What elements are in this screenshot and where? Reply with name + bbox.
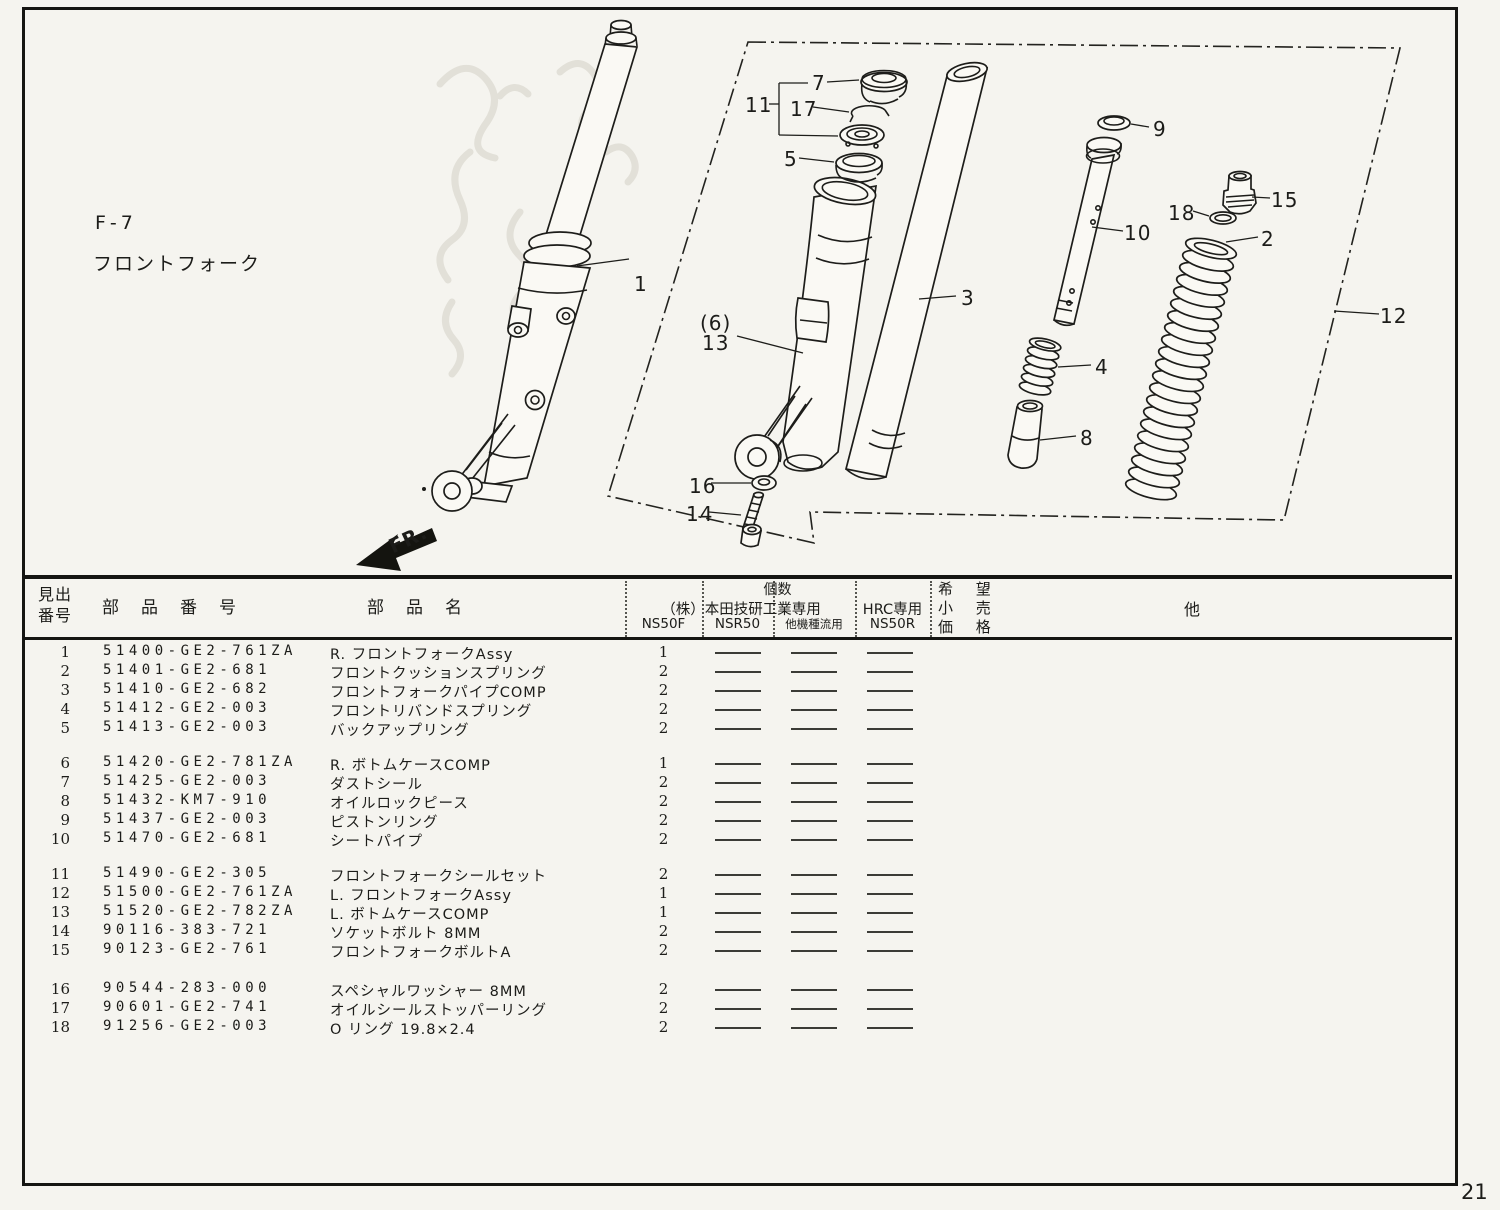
part-callout-1: 1	[634, 272, 648, 296]
table-row: 951437-GE2-003ピストンリング2	[22, 811, 1452, 830]
cell-part-number: 51420-GE2-781ZA	[103, 754, 297, 770]
cell-qty-ns50f: 2	[625, 865, 702, 883]
part-callout-10: 10	[1124, 221, 1151, 245]
cell-qty-other-models-dash	[791, 950, 837, 952]
cell-part-number: 51412-GE2-003	[103, 700, 271, 716]
cell-qty-other-models-dash	[791, 912, 837, 914]
cell-qty-nsr50-dash	[715, 989, 761, 991]
header-part-number: 部品番号	[102, 593, 258, 618]
cell-qty-ns50r-dash	[867, 671, 913, 673]
table-row: 251401-GE2-681フロントクッションスプリング2	[22, 662, 1452, 681]
part-callout-16: 16	[689, 474, 716, 498]
cell-qty-other-models-dash	[791, 709, 837, 711]
cell-qty-nsr50-dash	[715, 874, 761, 876]
cell-index-number: 5	[30, 719, 70, 737]
part-8-oil-lock-piece	[1008, 401, 1043, 469]
cell-part-number: 51490-GE2-305	[103, 865, 271, 881]
part-callout-17: 17	[790, 97, 817, 121]
table-row: 1251500-GE2-761ZAL. フロントフォークAssy1	[22, 884, 1452, 903]
cell-qty-ns50f: 1	[625, 754, 702, 772]
part-callout-12: 12	[1380, 304, 1407, 328]
cell-index-number: 7	[30, 773, 70, 791]
cell-index-number: 12	[30, 884, 70, 902]
cell-qty-ns50r-dash	[867, 801, 913, 803]
cell-qty-ns50r-dash	[867, 709, 913, 711]
cell-qty-nsr50-dash	[715, 763, 761, 765]
part-11-oil-seal	[840, 125, 884, 148]
part-callout-8: 8	[1080, 426, 1094, 450]
cell-qty-ns50r-dash	[867, 893, 913, 895]
cell-qty-ns50f: 2	[625, 681, 702, 699]
cell-qty-other-models-dash	[791, 690, 837, 692]
cell-part-name: フロントリバンドスプリング	[330, 700, 532, 721]
cell-index-number: 17	[30, 999, 70, 1017]
table-row: 351410-GE2-682フロントフォークパイプCOMP2	[22, 681, 1452, 700]
part-callout-9: 9	[1153, 117, 1167, 141]
page-number: 21	[1461, 1180, 1488, 1204]
cell-index-number: 11	[30, 865, 70, 883]
cell-qty-other-models-dash	[791, 763, 837, 765]
cell-qty-ns50f: 2	[625, 941, 702, 959]
cell-qty-ns50f: 2	[625, 811, 702, 829]
cell-qty-nsr50-dash	[715, 782, 761, 784]
table-row: 1490116-383-721ソケットボルト 8MM2	[22, 922, 1452, 941]
cell-qty-nsr50-dash	[715, 950, 761, 952]
part-17-stopper-ring	[850, 106, 889, 122]
part-4-rebound-spring	[1018, 336, 1062, 398]
part-callout-4: 4	[1095, 355, 1109, 379]
table-row: 1790601-GE2-741オイルシールストッパーリング2	[22, 999, 1452, 1018]
cell-index-number: 10	[30, 830, 70, 848]
header-ns50r: NS50R	[855, 616, 930, 632]
panel-outline	[608, 42, 1400, 543]
cell-qty-ns50r-dash	[867, 931, 913, 933]
part-18-o-ring	[1210, 212, 1236, 224]
part-callout-11: 11	[745, 93, 772, 117]
cell-qty-nsr50-dash	[715, 1008, 761, 1010]
cell-qty-nsr50-dash	[715, 652, 761, 654]
table-row: 1051470-GE2-681シートパイプ2	[22, 830, 1452, 849]
part-callout-3: 3	[961, 286, 975, 310]
cell-part-number: 51425-GE2-003	[103, 773, 271, 789]
cell-part-number: 51437-GE2-003	[103, 811, 271, 827]
cell-qty-other-models-dash	[791, 671, 837, 673]
cell-qty-ns50r-dash	[867, 874, 913, 876]
cell-part-name: オイルシールストッパーリング	[330, 999, 547, 1020]
cell-qty-nsr50-dash	[715, 728, 761, 730]
header-other-models: 他機種流用	[773, 616, 855, 632]
cell-part-name: ピストンリング	[330, 811, 439, 832]
cell-part-name: L. フロントフォークAssy	[330, 884, 512, 905]
cell-qty-other-models-dash	[791, 652, 837, 654]
part-callout-14: 14	[686, 502, 713, 526]
cell-part-name: R. フロントフォークAssy	[330, 643, 513, 664]
parts-table: 見出 番号 部品番号 部品名 個数 （株）本田技研工業専用 HRC専用 NS50…	[22, 575, 1452, 1184]
cell-index-number: 4	[30, 700, 70, 718]
cell-qty-other-models-dash	[791, 782, 837, 784]
cell-qty-other-models-dash	[791, 931, 837, 933]
part-callout-13: 13	[702, 331, 729, 355]
cell-part-name: ダストシール	[330, 773, 423, 794]
cell-qty-ns50r-dash	[867, 782, 913, 784]
cell-part-name: O リング 19.8×2.4	[330, 1018, 476, 1039]
table-row: 1690544-283-000スペシャルワッシャー 8MM2	[22, 980, 1452, 999]
header-quantity-group: 個数	[625, 579, 930, 599]
part-16-special-washer	[752, 476, 776, 490]
cell-index-number: 8	[30, 792, 70, 810]
part-callout-18: 18	[1168, 201, 1195, 225]
header-ns50f: NS50F	[625, 616, 702, 632]
cell-part-number: 51413-GE2-003	[103, 719, 271, 735]
cell-qty-ns50f: 1	[625, 884, 702, 902]
cell-qty-nsr50-dash	[715, 1027, 761, 1029]
table-header-divider	[22, 637, 1452, 640]
cell-part-name: L. ボトムケースCOMP	[330, 903, 489, 924]
cell-qty-ns50f: 2	[625, 830, 702, 848]
cell-qty-nsr50-dash	[715, 931, 761, 933]
cell-index-number: 13	[30, 903, 70, 921]
cell-qty-nsr50-dash	[715, 839, 761, 841]
cell-qty-other-models-dash	[791, 989, 837, 991]
cell-index-number: 1	[30, 643, 70, 661]
cell-part-number: 91256-GE2-003	[103, 1018, 271, 1034]
cell-qty-ns50f: 2	[625, 792, 702, 810]
cell-qty-nsr50-dash	[715, 709, 761, 711]
cell-index-number: 16	[30, 980, 70, 998]
cell-qty-ns50r-dash	[867, 839, 913, 841]
cell-qty-ns50r-dash	[867, 763, 913, 765]
cell-qty-other-models-dash	[791, 728, 837, 730]
header-retail-price: 希 望 小 売 価 格	[938, 580, 1000, 637]
header-price-line1: 希 望	[938, 580, 1000, 599]
cell-part-name: スペシャルワッシャー 8MM	[330, 980, 527, 1001]
cell-part-name: シートパイプ	[330, 830, 423, 851]
table-row: 551413-GE2-003バックアップリング2	[22, 719, 1452, 738]
header-price-line2: 小 売	[938, 599, 1000, 618]
cell-qty-ns50r-dash	[867, 652, 913, 654]
cell-part-number: 51410-GE2-682	[103, 681, 271, 697]
cell-qty-other-models-dash	[791, 839, 837, 841]
header-other: 他	[1022, 596, 1362, 620]
cell-qty-ns50f: 2	[625, 700, 702, 718]
cell-qty-ns50f: 2	[625, 1018, 702, 1036]
cell-part-number: 51520-GE2-782ZA	[103, 903, 297, 919]
cell-qty-nsr50-dash	[715, 801, 761, 803]
cell-qty-other-models-dash	[791, 874, 837, 876]
part-14-socket-bolt	[741, 492, 763, 546]
cell-index-number: 9	[30, 811, 70, 829]
table-row: 1351520-GE2-782ZAL. ボトムケースCOMP1	[22, 903, 1452, 922]
cell-part-name: フロントフォークパイプCOMP	[330, 681, 547, 702]
cell-part-name: フロントクッションスプリング	[330, 662, 547, 683]
cell-part-number: 51401-GE2-681	[103, 662, 271, 678]
cell-qty-ns50r-dash	[867, 820, 913, 822]
cell-index-number: 18	[30, 1018, 70, 1036]
cell-qty-ns50r-dash	[867, 1027, 913, 1029]
table-row: 751425-GE2-003ダストシール2	[22, 773, 1452, 792]
cell-qty-nsr50-dash	[715, 690, 761, 692]
cell-part-number: 90544-283-000	[103, 980, 271, 996]
cell-qty-ns50f: 1	[625, 643, 702, 661]
part-callout-5: 5	[784, 147, 798, 171]
header-price-line3: 価 格	[938, 618, 1000, 637]
cell-qty-ns50f: 2	[625, 773, 702, 791]
cell-qty-other-models-dash	[791, 1008, 837, 1010]
cell-qty-ns50r-dash	[867, 950, 913, 952]
cell-index-number: 15	[30, 941, 70, 959]
part-2-cushion-spring	[1124, 234, 1239, 504]
cell-qty-ns50r-dash	[867, 989, 913, 991]
cell-qty-ns50f: 2	[625, 999, 702, 1017]
cell-qty-other-models-dash	[791, 893, 837, 895]
part-callout-2: 2	[1261, 227, 1275, 251]
table-row: 151400-GE2-761ZAR. フロントフォークAssy1	[22, 643, 1452, 662]
cell-index-number: 14	[30, 922, 70, 940]
cell-qty-nsr50-dash	[715, 820, 761, 822]
part-10-seat-pipe	[1054, 138, 1121, 326]
cell-index-number: 2	[30, 662, 70, 680]
cell-qty-other-models-dash	[791, 1027, 837, 1029]
part-callout-15: 15	[1271, 188, 1298, 212]
cell-part-name: オイルロックピース	[330, 792, 469, 813]
table-row: 1151490-GE2-305フロントフォークシールセット2	[22, 865, 1452, 884]
header-index-line2: 番号	[38, 606, 72, 626]
cell-qty-ns50f: 2	[625, 719, 702, 737]
cell-part-number: 90123-GE2-761	[103, 941, 271, 957]
callout-leader-lines	[577, 80, 1379, 515]
cell-qty-ns50r-dash	[867, 690, 913, 692]
cell-qty-ns50r-dash	[867, 912, 913, 914]
table-row: 851432-KM7-910オイルロックピース2	[22, 792, 1452, 811]
cell-qty-ns50f: 1	[625, 903, 702, 921]
cell-qty-ns50r-dash	[867, 728, 913, 730]
cell-qty-other-models-dash	[791, 801, 837, 803]
cell-part-number: 51470-GE2-681	[103, 830, 271, 846]
cell-qty-ns50f: 2	[625, 662, 702, 680]
column-divider	[930, 581, 932, 637]
part-9-piston-ring	[1098, 116, 1130, 130]
cell-part-name: バックアップリング	[330, 719, 470, 740]
table-row: 651420-GE2-781ZAR. ボトムケースCOMP1	[22, 754, 1452, 773]
cell-qty-nsr50-dash	[715, 893, 761, 895]
cell-qty-ns50f: 2	[625, 922, 702, 940]
part-3-fork-pipe	[846, 59, 989, 479]
cell-qty-ns50f: 2	[625, 980, 702, 998]
cell-part-number: 90601-GE2-741	[103, 999, 271, 1015]
cell-qty-nsr50-dash	[715, 912, 761, 914]
part-callout-7: 7	[812, 71, 826, 95]
part-5-backup-ring	[836, 154, 882, 183]
cell-part-name: R. ボトムケースCOMP	[330, 754, 491, 775]
cell-part-number: 51400-GE2-761ZA	[103, 643, 297, 659]
cell-qty-ns50r-dash	[867, 1008, 913, 1010]
cell-part-name: フロントフォークシールセット	[330, 865, 547, 886]
table-row: 1590123-GE2-761フロントフォークボルトA2	[22, 941, 1452, 960]
cell-part-number: 51500-GE2-761ZA	[103, 884, 297, 900]
part-15-fork-bolt	[1223, 172, 1256, 214]
cell-index-number: 6	[30, 754, 70, 772]
header-part-name: 部品名	[367, 593, 484, 618]
cell-index-number: 3	[30, 681, 70, 699]
table-row: 451412-GE2-003フロントリバンドスプリング2	[22, 700, 1452, 719]
header-index-line1: 見出	[38, 585, 72, 605]
table-row: 1891256-GE2-003O リング 19.8×2.42	[22, 1018, 1452, 1037]
cell-qty-nsr50-dash	[715, 671, 761, 673]
cell-part-name: ソケットボルト 8MM	[330, 922, 481, 943]
cell-part-number: 51432-KM7-910	[103, 792, 271, 808]
part-7-dust-seal	[861, 71, 907, 104]
cell-qty-other-models-dash	[791, 820, 837, 822]
header-nsr50: NSR50	[702, 616, 773, 632]
cell-part-number: 90116-383-721	[103, 922, 271, 938]
cell-part-name: フロントフォークボルトA	[330, 941, 511, 962]
